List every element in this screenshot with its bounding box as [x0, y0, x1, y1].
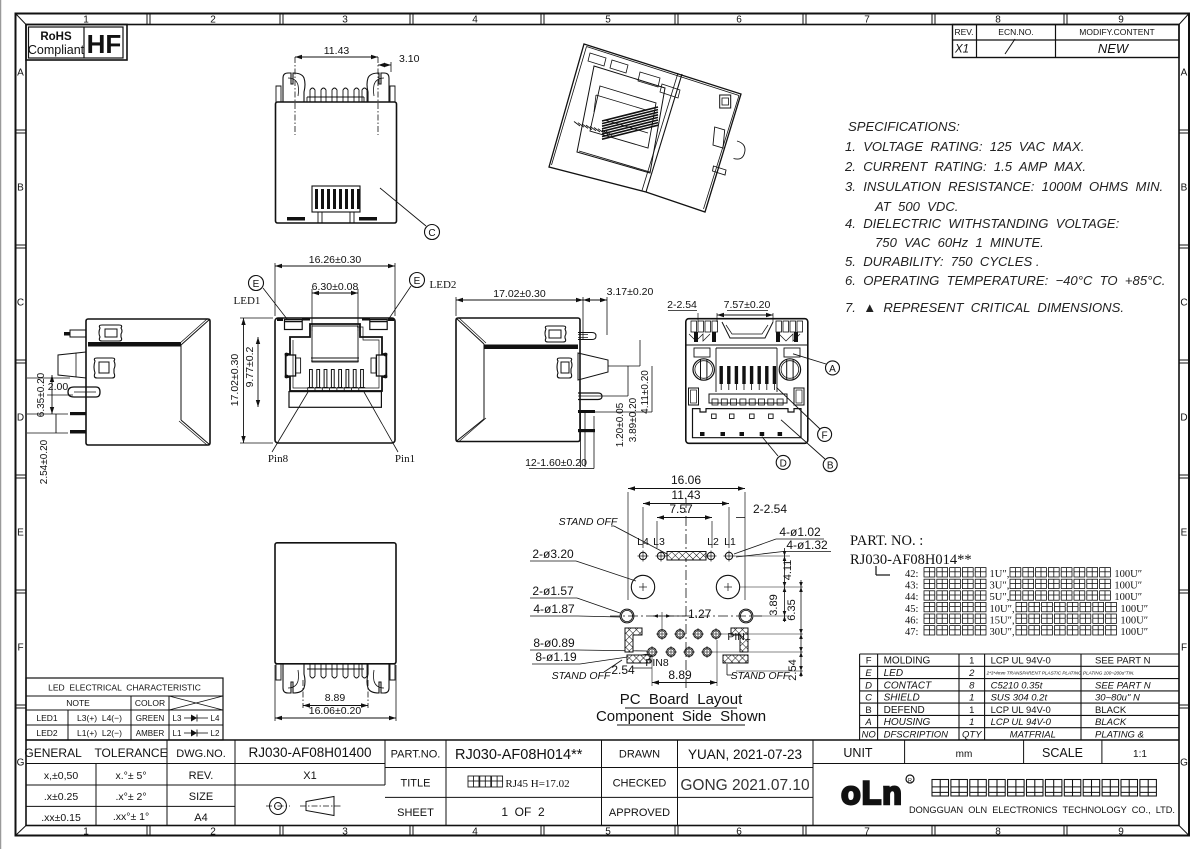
svg-text:LED2: LED2	[36, 728, 58, 738]
svg-text:1: 1	[969, 693, 974, 704]
svg-text:46:: 46:	[905, 615, 919, 626]
svg-text:2-2.54: 2-2.54	[667, 299, 697, 311]
svg-text:8.89: 8.89	[325, 692, 346, 704]
svg-text:16.06: 16.06	[671, 473, 701, 487]
svg-text:YUAN, 2021-07-23: YUAN, 2021-07-23	[688, 747, 802, 762]
svg-text:1 OF 2: 1 OF 2	[501, 805, 545, 819]
svg-text:7: 7	[864, 827, 870, 838]
svg-text:B: B	[827, 461, 834, 472]
svg-text:A: A	[1181, 68, 1188, 79]
svg-text:x.°± 5°: x.°± 5°	[115, 770, 146, 782]
svg-text:3.89: 3.89	[768, 594, 780, 615]
svg-text:100U″: 100U″	[1120, 604, 1148, 615]
svg-text:3: 3	[342, 827, 348, 838]
svg-text:C5210 0.35t: C5210 0.35t	[991, 680, 1043, 691]
svg-text:D: D	[865, 680, 872, 691]
svg-text:1. VOLTAGE RATING: 125 VAC: 1. VOLTAGE RATING: 125 VAC MAX.	[845, 139, 1084, 154]
svg-text:REV.: REV.	[954, 27, 973, 37]
svg-text:NO: NO	[861, 729, 876, 740]
svg-text:DWG.NO.: DWG.NO.	[176, 748, 226, 760]
svg-text:100U″: 100U″	[1120, 615, 1148, 626]
svg-text:PIN1: PIN1	[727, 631, 751, 643]
svg-text:3U″,: 3U″,	[990, 581, 1010, 592]
svg-text:L3: L3	[653, 536, 665, 548]
svg-text:5: 5	[605, 15, 611, 26]
svg-text:STAND OFF: STAND OFF	[559, 516, 618, 528]
svg-text:5. DURABILITY: 750 CYCLES .: 5. DURABILITY: 750 CYCLES .	[845, 254, 1040, 269]
svg-text:3.89±0.20: 3.89±0.20	[628, 397, 639, 442]
svg-text:1U″,: 1U″,	[990, 569, 1010, 580]
svg-text:2-2.54: 2-2.54	[753, 502, 787, 516]
svg-text:1: 1	[969, 656, 974, 667]
svg-text:AT 500 VDC.: AT 500 VDC.	[874, 199, 958, 214]
svg-text:L1(+) L2(−): L1(+) L2(−)	[77, 728, 122, 738]
svg-text:16.26±0.30: 16.26±0.30	[309, 254, 362, 266]
svg-text:X1: X1	[954, 44, 969, 56]
svg-text:8: 8	[995, 827, 1001, 838]
svg-text:COLOR: COLOR	[135, 698, 165, 708]
svg-text:LED2: LED2	[430, 279, 457, 291]
svg-text:4.11: 4.11	[782, 560, 794, 581]
svg-text:F: F	[1181, 643, 1187, 654]
svg-text:DEFEND: DEFEND	[884, 705, 925, 716]
svg-text:TITLE: TITLE	[401, 778, 431, 790]
svg-text:E: E	[414, 276, 421, 287]
svg-text:3.10: 3.10	[399, 53, 420, 65]
svg-text:2: 2	[210, 15, 216, 26]
svg-text:MATFRIAL: MATFRIAL	[1010, 729, 1056, 740]
svg-text:.xx°± 1°: .xx°± 1°	[113, 811, 149, 823]
svg-text:LCP UL 94V-0: LCP UL 94V-0	[991, 705, 1051, 716]
svg-text:750 VAC 60Hz 1 MINUTE.: 750 VAC 60Hz 1 MINUTE.	[875, 235, 1044, 250]
svg-text:7.57: 7.57	[669, 502, 693, 516]
svg-text:7. ▲ REPRESENT CRITICAL DI: 7. ▲ REPRESENT CRITICAL DIMENSIONS.	[845, 300, 1124, 315]
svg-text:SHIELD: SHIELD	[884, 693, 920, 704]
svg-text:30U″,: 30U″,	[990, 627, 1015, 638]
svg-text:L1: L1	[173, 729, 182, 738]
svg-text:F: F	[822, 431, 828, 442]
svg-text:4.11±0.20: 4.11±0.20	[640, 370, 651, 414]
svg-text:43:: 43:	[905, 581, 919, 592]
svg-text:1: 1	[969, 717, 974, 728]
svg-text:42:: 42:	[905, 569, 919, 580]
svg-text:SEE PART N: SEE PART N	[1095, 680, 1151, 691]
svg-text:LED: LED	[884, 668, 903, 679]
svg-text:GREEN: GREEN	[136, 714, 165, 723]
svg-text:4. DIELECTRIC WITHSTANDING: 4. DIELECTRIC WITHSTANDING VOLTAGE:	[845, 216, 1120, 231]
svg-text:6.35±0.20: 6.35±0.20	[36, 372, 47, 417]
svg-text:D: D	[17, 413, 24, 424]
svg-text:9: 9	[1118, 827, 1124, 838]
svg-text:LCP UL 94V-0: LCP UL 94V-0	[991, 656, 1051, 667]
svg-text:C: C	[428, 228, 435, 239]
svg-text:BLACK: BLACK	[1095, 717, 1127, 728]
svg-text:L2: L2	[707, 536, 719, 548]
svg-text:L4: L4	[211, 714, 220, 723]
svg-text:MOLDING: MOLDING	[884, 656, 931, 667]
svg-text:7.57±0.20: 7.57±0.20	[724, 299, 771, 311]
svg-text:SUS 304 0.2t: SUS 304 0.2t	[991, 693, 1048, 704]
svg-text:E: E	[865, 668, 872, 679]
svg-text:BLACK: BLACK	[1095, 705, 1127, 716]
svg-text:4-ø1.32: 4-ø1.32	[786, 538, 828, 552]
svg-text:5U″,: 5U″,	[990, 592, 1010, 603]
svg-text:Component Side Shown: Component Side Shown	[596, 708, 766, 725]
svg-text:11.43: 11.43	[324, 45, 350, 57]
svg-text:NOTE: NOTE	[66, 698, 90, 708]
svg-text:11.43: 11.43	[671, 488, 700, 502]
svg-text:NEW: NEW	[1098, 41, 1130, 56]
svg-text:7: 7	[864, 15, 870, 26]
svg-text:DFSCRIPTION: DFSCRIPTION	[884, 729, 949, 740]
svg-text:45:: 45:	[905, 604, 919, 615]
svg-text:LED1: LED1	[36, 713, 58, 723]
svg-text:ECN.NO.: ECN.NO.	[998, 27, 1033, 37]
svg-text:47:: 47:	[905, 627, 919, 638]
svg-text:8-ø1.19: 8-ø1.19	[535, 650, 577, 664]
svg-text:G: G	[17, 758, 25, 769]
svg-text:LED ELECTRICAL CHARACTERISTI: LED ELECTRICAL CHARACTERISTIC	[48, 683, 201, 693]
svg-text:2. CURRENT RATING: 1.5 AMP: 2. CURRENT RATING: 1.5 AMP MAX.	[844, 159, 1086, 174]
svg-text:oLn: oLn	[841, 775, 903, 811]
svg-text:RJ030-AF08H014**: RJ030-AF08H014**	[455, 747, 583, 763]
svg-text:2: 2	[210, 827, 216, 838]
svg-text:L4: L4	[637, 536, 649, 548]
svg-text:2.54: 2.54	[787, 659, 799, 680]
svg-text:PC Board Layout: PC Board Layout	[620, 691, 743, 708]
svg-text:L3: L3	[173, 714, 182, 723]
svg-text:C: C	[17, 298, 24, 309]
svg-text:2: 2	[968, 668, 975, 679]
svg-text:6: 6	[736, 827, 742, 838]
svg-text:2.54: 2.54	[611, 663, 635, 677]
svg-text:Pin1: Pin1	[395, 453, 415, 465]
svg-text:Compliant: Compliant	[28, 43, 85, 57]
svg-text:17.02±0.30: 17.02±0.30	[493, 288, 546, 300]
svg-text:RJ45 H=17.02: RJ45 H=17.02	[505, 778, 569, 790]
svg-text:A: A	[864, 717, 871, 728]
svg-text:RJ030-AF08H01400: RJ030-AF08H01400	[248, 745, 371, 760]
svg-text:6: 6	[736, 15, 742, 26]
svg-text:17.02±0.30: 17.02±0.30	[229, 354, 241, 407]
svg-text:2.00: 2.00	[48, 381, 69, 393]
svg-text:E: E	[1181, 528, 1188, 539]
svg-text:1:1: 1:1	[1133, 749, 1147, 760]
svg-text:4: 4	[472, 15, 478, 26]
svg-text:100U″: 100U″	[1114, 569, 1142, 580]
svg-text:8.89: 8.89	[668, 668, 692, 682]
svg-text:4: 4	[472, 827, 478, 838]
svg-text:4-ø1.02: 4-ø1.02	[779, 525, 821, 539]
svg-text:QTY: QTY	[962, 729, 982, 740]
svg-text:2*3*4mm TRANSPARENT PLASTIC PL: 2*3*4mm TRANSPARENT PLASTIC PLATING ,	[986, 670, 1085, 675]
svg-text:HF: HF	[87, 29, 122, 59]
svg-text:x,±0,50: x,±0,50	[44, 770, 79, 782]
svg-text:CHECKED: CHECKED	[613, 778, 667, 790]
svg-text:SHEET: SHEET	[397, 807, 434, 819]
svg-text:mm: mm	[956, 749, 973, 760]
svg-text:MODIFY.CONTENT: MODIFY.CONTENT	[1079, 27, 1154, 37]
svg-text:C: C	[1180, 298, 1187, 309]
svg-text:G: G	[1180, 758, 1188, 769]
svg-text:F: F	[17, 643, 23, 654]
svg-text:L2: L2	[211, 729, 220, 738]
svg-text:L1: L1	[724, 536, 736, 548]
svg-text:E: E	[17, 528, 24, 539]
svg-text:.xx±0.15: .xx±0.15	[41, 812, 81, 824]
svg-text:2-ø1.57: 2-ø1.57	[532, 584, 574, 598]
svg-text:30~80u" N: 30~80u" N	[1095, 693, 1140, 704]
svg-text:HOUSING: HOUSING	[884, 717, 931, 728]
svg-text:Pin8: Pin8	[268, 453, 289, 465]
svg-text:RJ030-AF08H014**: RJ030-AF08H014**	[850, 552, 972, 568]
svg-text:B: B	[17, 183, 24, 194]
svg-text:6. OPERATING TEMPERATURE: −: 6. OPERATING TEMPERATURE: −40°C TO +85°C…	[845, 273, 1165, 288]
svg-text:SPECIFICATIONS:: SPECIFICATIONS:	[848, 119, 960, 134]
svg-text:8: 8	[969, 680, 975, 691]
svg-text:100U″: 100U″	[1114, 592, 1142, 603]
svg-text:.x±0.25: .x±0.25	[44, 791, 79, 803]
svg-text:A: A	[17, 68, 24, 79]
svg-text:3: 3	[342, 15, 348, 26]
svg-text:8-ø0.89: 8-ø0.89	[533, 636, 575, 650]
svg-text:D: D	[1180, 413, 1187, 424]
svg-text:100U″: 100U″	[1120, 627, 1148, 638]
svg-text:1.27: 1.27	[688, 607, 712, 621]
svg-text:12-1.60±0.20: 12-1.60±0.20	[525, 457, 587, 469]
svg-text:DONGGUAN OLN ELECTRONICS TE: DONGGUAN OLN ELECTRONICS TECHNOLOGY CO.,…	[909, 805, 1175, 815]
svg-text:1: 1	[969, 705, 974, 716]
svg-text:DRAWN: DRAWN	[619, 749, 660, 761]
svg-text:SEE PART N: SEE PART N	[1095, 656, 1151, 667]
svg-text:3.17±0.20: 3.17±0.20	[607, 286, 654, 298]
svg-text:STAND OFF: STAND OFF	[552, 670, 611, 682]
svg-text:A4: A4	[194, 812, 207, 824]
svg-text:2.54±0.20: 2.54±0.20	[39, 439, 50, 484]
svg-text:.x°± 2°: .x°± 2°	[115, 791, 146, 803]
svg-text:UNIT: UNIT	[843, 746, 873, 760]
svg-text:STAND OFF: STAND OFF	[731, 670, 790, 682]
svg-text:APPROVED: APPROVED	[609, 807, 670, 819]
svg-text:B: B	[1181, 183, 1188, 194]
svg-text:R: R	[908, 778, 912, 784]
svg-text:SIZE: SIZE	[189, 791, 213, 803]
svg-text:C: C	[865, 693, 872, 704]
svg-text:E: E	[253, 279, 260, 290]
svg-text:SCALE: SCALE	[1042, 746, 1083, 760]
svg-text:9.77±0.2: 9.77±0.2	[244, 346, 256, 387]
svg-text:44:: 44:	[905, 592, 919, 603]
svg-text:CONTACT: CONTACT	[884, 680, 932, 691]
svg-text:PART. NO. :: PART. NO. :	[850, 533, 923, 549]
svg-text:B: B	[865, 705, 871, 716]
svg-text:1.20±0.05: 1.20±0.05	[615, 402, 626, 447]
svg-text:1: 1	[83, 827, 89, 838]
svg-text:GONG 2021.07.10: GONG 2021.07.10	[680, 777, 810, 794]
svg-text:15U″,: 15U″,	[990, 615, 1015, 626]
svg-text:6.30±0.08: 6.30±0.08	[312, 281, 359, 293]
svg-text:A: A	[829, 364, 836, 375]
svg-text:3. INSULATION RESISTANCE: 1: 3. INSULATION RESISTANCE: 1000M OHMS MIN…	[845, 179, 1163, 194]
svg-text:REV.: REV.	[189, 770, 214, 782]
svg-text:L3(+) L4(−): L3(+) L4(−)	[77, 713, 122, 723]
svg-text:X1: X1	[303, 770, 316, 782]
svg-text:PART.NO.: PART.NO.	[391, 749, 441, 761]
svg-text:100U″: 100U″	[1114, 581, 1142, 592]
svg-text:6.35: 6.35	[786, 599, 798, 620]
svg-text:F: F	[866, 656, 872, 667]
svg-text:2-ø3.20: 2-ø3.20	[532, 547, 574, 561]
svg-text:RoHS: RoHS	[40, 31, 72, 43]
svg-text:LED1: LED1	[234, 295, 261, 307]
svg-text:4-ø1.87: 4-ø1.87	[533, 602, 575, 616]
svg-text:GENERAL TOLERANCE: GENERAL TOLERANCE	[24, 746, 167, 760]
svg-text:PLATING &: PLATING &	[1095, 729, 1144, 740]
svg-text:10U″,: 10U″,	[990, 604, 1015, 615]
svg-text:5: 5	[605, 827, 611, 838]
svg-text:AMBER: AMBER	[136, 729, 165, 738]
svg-text:16.06±0.20: 16.06±0.20	[309, 705, 362, 717]
svg-text:D: D	[780, 459, 787, 470]
svg-text:LCP UL 94V-0: LCP UL 94V-0	[991, 717, 1052, 728]
svg-text:PLATING 100~200u"TIN.: PLATING 100~200u"TIN.	[1083, 670, 1134, 675]
